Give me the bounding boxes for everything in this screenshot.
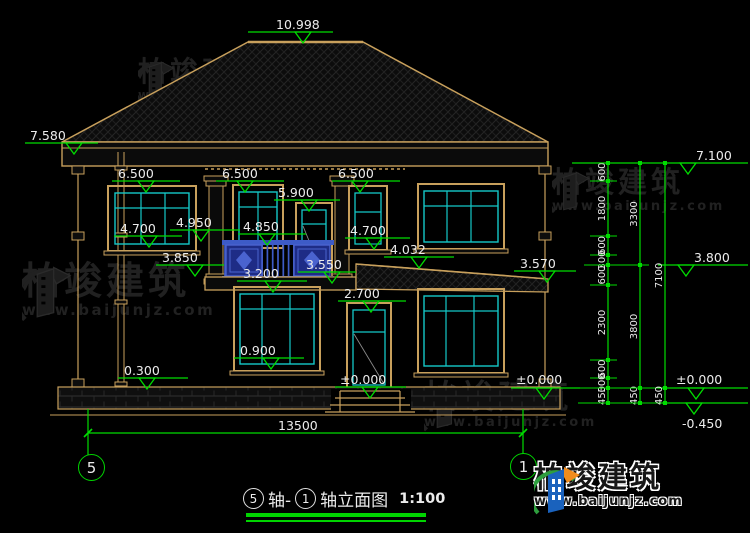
level-label: 6.500 bbox=[338, 166, 374, 181]
dim-segment-label: 450 bbox=[629, 386, 640, 405]
dimension-chain: 60018006003006002300600300450 bbox=[590, 161, 617, 405]
level-triangle-icon bbox=[363, 301, 379, 312]
level-triangle-icon bbox=[678, 265, 694, 276]
dimension-layer: 10.9987.5806.5006.5006.5005.9004.9504.70… bbox=[0, 0, 750, 533]
dim-segment-label: 3800 bbox=[629, 314, 640, 339]
level-label: 6.500 bbox=[118, 166, 154, 181]
level-marker: 4.032 bbox=[384, 242, 454, 268]
level-label: 7.100 bbox=[696, 148, 732, 163]
dim-tick bbox=[638, 263, 642, 267]
level-label: 7.580 bbox=[30, 128, 66, 143]
axis-bubble-5: 5 bbox=[78, 454, 105, 481]
level-label: 4.850 bbox=[243, 219, 279, 234]
dim-segment-label: 600 bbox=[597, 162, 608, 181]
level-triangle-icon bbox=[265, 281, 281, 292]
title-underline-thick bbox=[246, 513, 426, 517]
dim-segment-label: 450 bbox=[654, 386, 665, 405]
dim-segment-label: 600 bbox=[597, 265, 608, 284]
level-label: 2.700 bbox=[344, 286, 380, 301]
level-triangle-icon bbox=[187, 265, 203, 276]
level-marker: 6.500 bbox=[216, 166, 284, 192]
level-marker: -0.450 bbox=[658, 403, 748, 431]
level-marker: ±0.000 bbox=[335, 372, 406, 398]
dim-segment-label: 3300 bbox=[629, 201, 640, 226]
drawing-title: 5轴- 1轴立面图1:100 bbox=[243, 486, 445, 511]
level-triangle-icon bbox=[263, 358, 279, 369]
title-scale: 1:100 bbox=[399, 491, 445, 507]
level-label: 3.800 bbox=[694, 250, 730, 265]
cad-elevation-canvas: 柏竣建筑 www.baijunjz.com 柏竣建筑 www.baijunjz.… bbox=[0, 0, 750, 533]
brand-logo: 柏竣建筑 www.baijunjz.com bbox=[534, 463, 683, 509]
level-marker: 6.500 bbox=[332, 166, 400, 192]
level-triangle-icon bbox=[237, 181, 253, 192]
level-label: 0.300 bbox=[124, 363, 160, 378]
dim-segment-label: 2300 bbox=[597, 310, 608, 335]
title-underline-thin bbox=[246, 520, 426, 522]
dim-segment-label: 7100 bbox=[654, 263, 665, 288]
dim-segment-label: 1800 bbox=[597, 196, 608, 221]
level-marker: 4.850 bbox=[238, 219, 306, 245]
level-marker: 3.800 bbox=[658, 250, 748, 276]
level-marker: ±0.000 bbox=[511, 372, 580, 399]
level-triangle-icon bbox=[139, 378, 155, 389]
dimension-chain: 33003800450 bbox=[584, 161, 649, 405]
level-triangle-icon bbox=[141, 236, 157, 247]
level-triangle-icon bbox=[193, 230, 209, 241]
dim-segment-label: 450 bbox=[597, 386, 608, 405]
level-marker: 0.900 bbox=[234, 343, 304, 369]
level-triangle-icon bbox=[301, 200, 317, 211]
title-axis-end: 1 bbox=[295, 488, 316, 509]
level-triangle-icon bbox=[66, 143, 82, 154]
level-marker: 3.850 bbox=[156, 250, 224, 276]
level-label: 10.998 bbox=[276, 17, 320, 32]
level-marker: 3.570 bbox=[514, 256, 576, 282]
level-label: ±0.000 bbox=[676, 372, 722, 387]
level-label: 0.900 bbox=[240, 343, 276, 358]
level-triangle-icon bbox=[362, 387, 378, 398]
level-triangle-icon bbox=[295, 32, 311, 43]
level-triangle-icon bbox=[686, 403, 702, 414]
level-triangle-icon bbox=[352, 181, 368, 192]
level-label: 4.700 bbox=[120, 221, 156, 236]
level-marker: 2.700 bbox=[338, 286, 406, 312]
level-marker: 4.700 bbox=[114, 221, 182, 247]
level-triangle-icon bbox=[536, 388, 552, 399]
level-label: 4.950 bbox=[176, 215, 212, 230]
level-label: 4.032 bbox=[390, 242, 426, 257]
level-label: 3.200 bbox=[243, 266, 279, 281]
level-marker: 4.950 bbox=[170, 215, 240, 241]
level-marker: ±0.000 bbox=[658, 372, 748, 399]
level-triangle-icon bbox=[688, 388, 704, 399]
brand-logo-icon bbox=[534, 463, 586, 521]
level-label: ±0.000 bbox=[516, 372, 562, 387]
level-label: 4.700 bbox=[350, 223, 386, 238]
bottom-dimension: 13500 bbox=[84, 409, 527, 455]
level-label: 3.550 bbox=[306, 257, 342, 272]
level-label: 3.570 bbox=[520, 256, 556, 271]
level-triangle-icon bbox=[411, 257, 427, 268]
level-label: ±0.000 bbox=[340, 372, 386, 387]
level-marker: 0.300 bbox=[118, 363, 188, 389]
dim-tick bbox=[663, 161, 667, 165]
level-marker: 6.500 bbox=[112, 166, 180, 192]
level-triangle-icon bbox=[366, 238, 382, 249]
level-triangle-icon bbox=[259, 234, 275, 245]
level-triangle-icon bbox=[138, 181, 154, 192]
level-label: 3.850 bbox=[162, 250, 198, 265]
level-label: -0.450 bbox=[682, 416, 722, 431]
level-marker: 10.998 bbox=[248, 17, 333, 43]
level-marker: 3.200 bbox=[237, 266, 307, 292]
axis-bubble-1: 1 bbox=[510, 453, 537, 480]
level-label: 6.500 bbox=[222, 166, 258, 181]
title-axis-start: 5 bbox=[243, 488, 264, 509]
bottom-dim-label: 13500 bbox=[278, 418, 318, 433]
level-marker: 7.580 bbox=[25, 128, 98, 154]
level-triangle-icon bbox=[680, 163, 696, 174]
level-triangle-icon bbox=[324, 272, 340, 283]
title-suffix: 轴立面图 bbox=[320, 486, 388, 511]
title-mid: 轴- bbox=[268, 486, 291, 511]
level-triangle-icon bbox=[539, 271, 555, 282]
level-label: 5.900 bbox=[278, 185, 314, 200]
level-marker: 3.550 bbox=[298, 257, 356, 283]
dimension-chain: 7100450 bbox=[578, 161, 674, 405]
level-marker: 5.900 bbox=[274, 185, 340, 211]
